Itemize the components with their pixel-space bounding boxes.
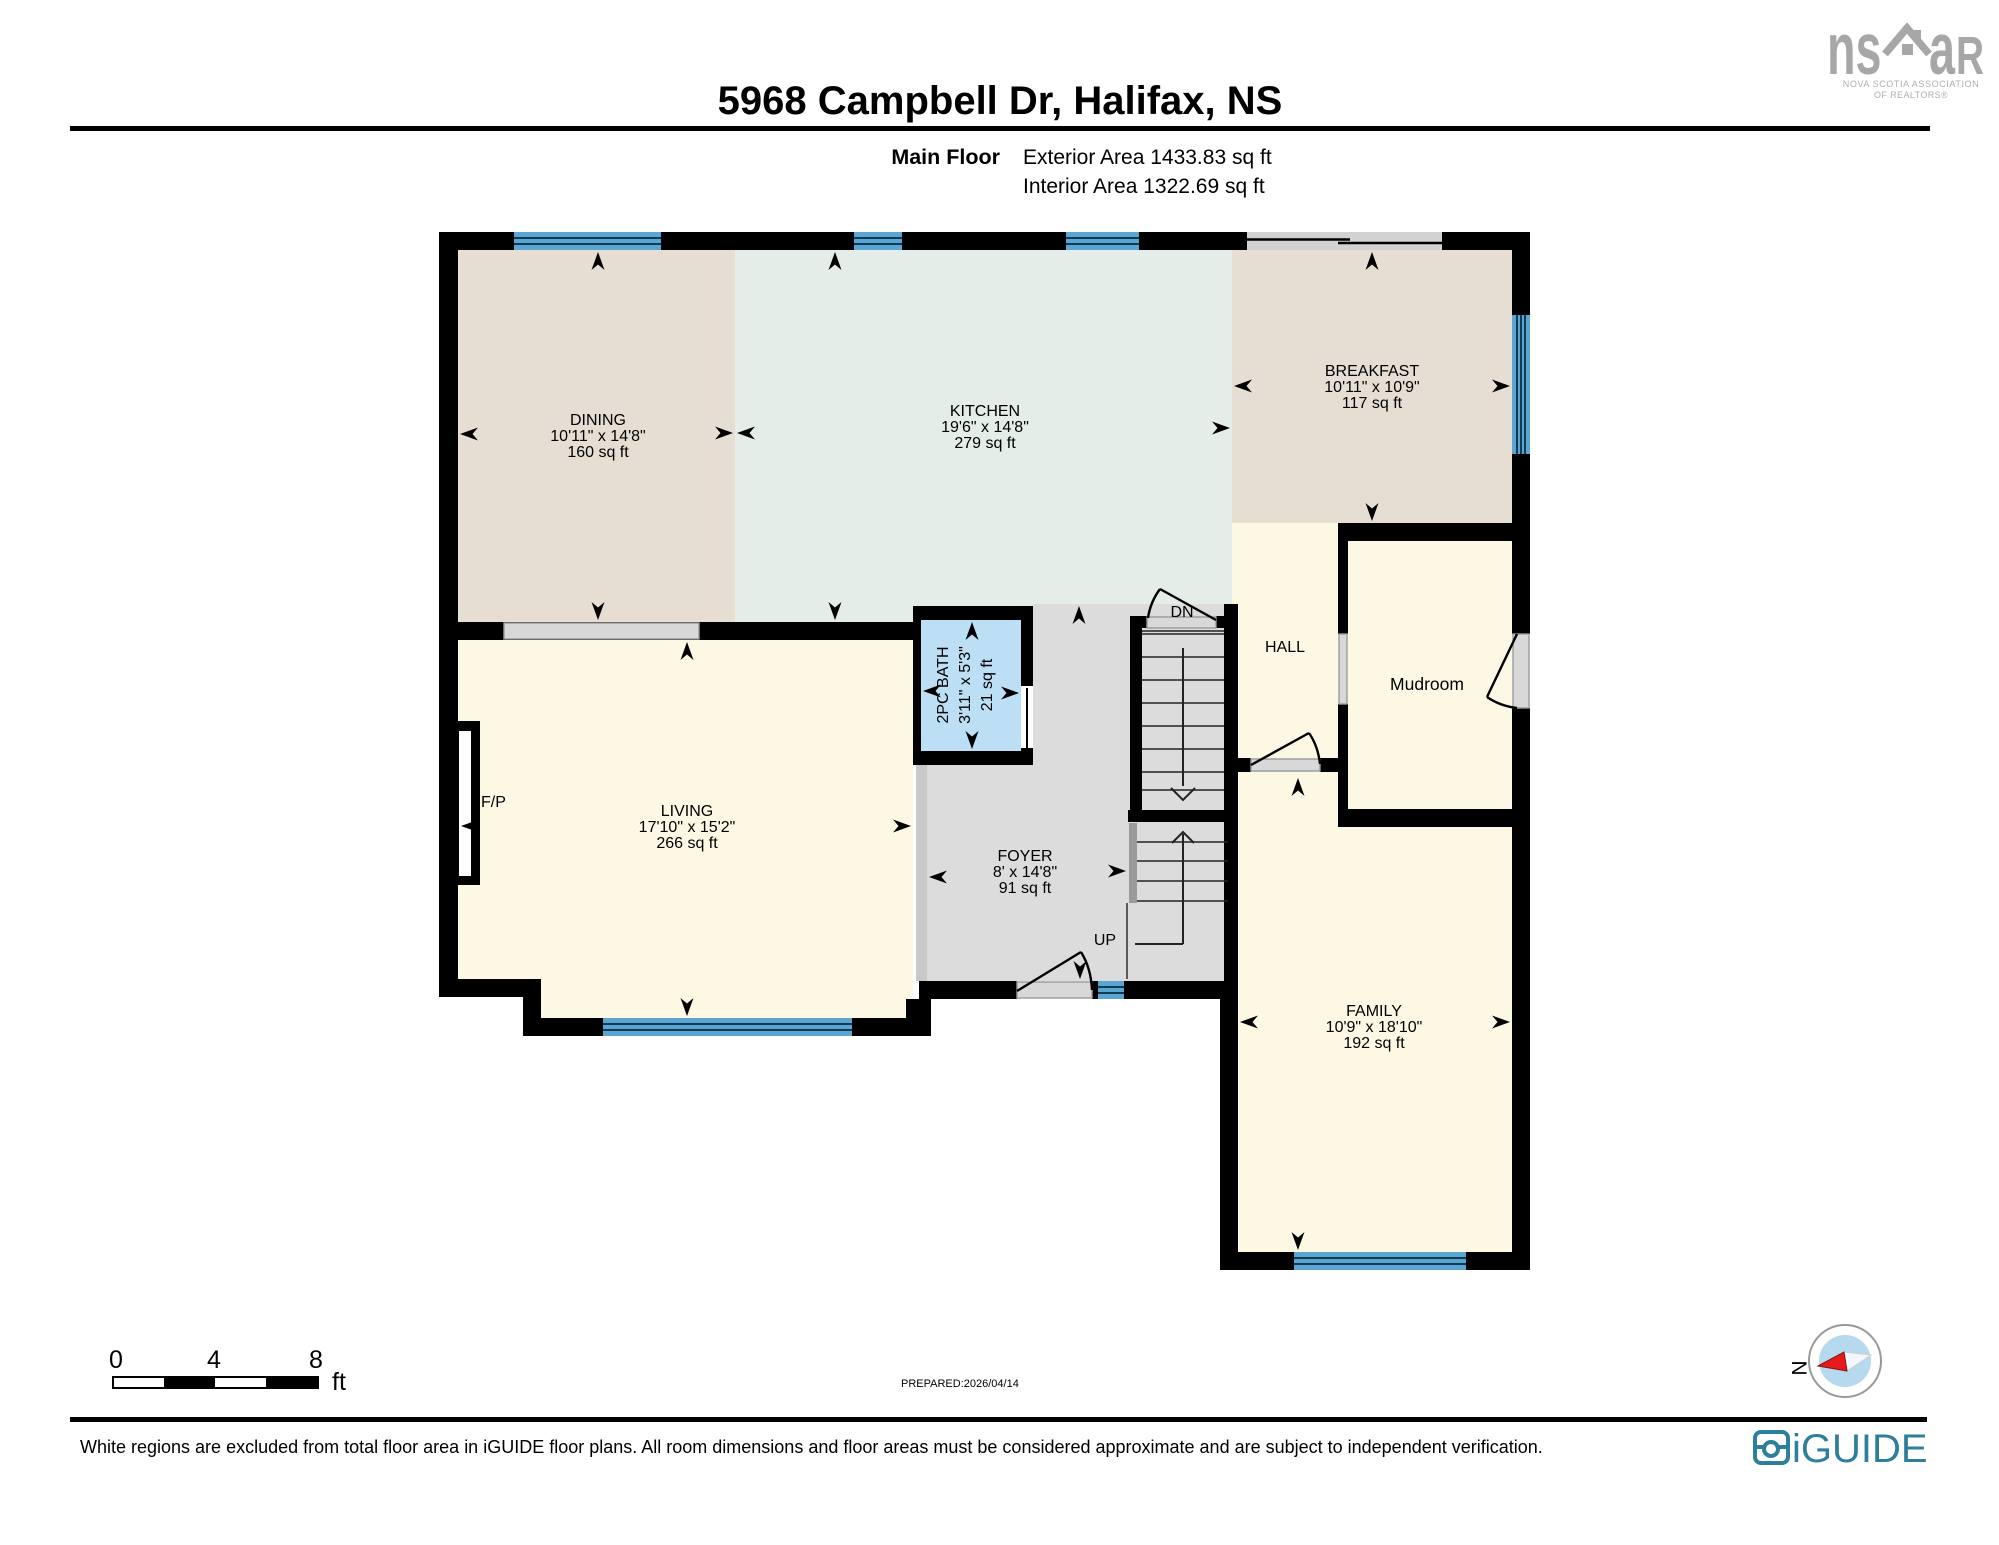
svg-text:UP: UP: [1094, 932, 1116, 949]
svg-text:Interior Area 1322.69 sq ft: Interior Area 1322.69 sq ft: [1023, 175, 1265, 198]
svg-text:White regions are excluded fro: White regions are excluded from total fl…: [80, 1437, 1543, 1457]
svg-text:Exterior Area 1433.83 sq ft: Exterior Area 1433.83 sq ft: [1023, 146, 1272, 169]
svg-text:279 sq ft: 279 sq ft: [954, 435, 1016, 452]
svg-text:a: a: [1929, 8, 1956, 89]
svg-text:ft: ft: [332, 1368, 346, 1396]
svg-text:N: N: [1789, 1360, 1812, 1375]
svg-text:ns: ns: [1827, 8, 1882, 89]
svg-text:266 sq ft: 266 sq ft: [656, 835, 718, 852]
svg-text:19'6" x 14'8": 19'6" x 14'8": [941, 419, 1029, 436]
svg-text:Mudroom: Mudroom: [1390, 674, 1464, 694]
svg-text:192 sq ft: 192 sq ft: [1343, 1035, 1405, 1052]
svg-text:117 sq ft: 117 sq ft: [1342, 395, 1403, 412]
svg-text:4: 4: [207, 1346, 221, 1374]
svg-text:2PC BATH: 2PC BATH: [935, 646, 952, 723]
svg-text:0: 0: [109, 1346, 123, 1374]
svg-text:3'11" x 5'3": 3'11" x 5'3": [957, 646, 974, 724]
svg-text:91 sq ft: 91 sq ft: [999, 880, 1052, 897]
svg-text:DINING: DINING: [570, 412, 626, 429]
svg-text:17'10" x 15'2": 17'10" x 15'2": [639, 819, 736, 836]
svg-text:10'11" x 14'8": 10'11" x 14'8": [550, 428, 645, 445]
svg-text:KITCHEN: KITCHEN: [950, 403, 1020, 420]
svg-text:R: R: [1956, 25, 1984, 86]
svg-text:iGUIDE: iGUIDE: [1792, 1427, 1928, 1471]
svg-text:F/P: F/P: [481, 794, 506, 811]
svg-text:OF REALTORS®: OF REALTORS®: [1874, 90, 1948, 100]
svg-text:160 sq ft: 160 sq ft: [567, 444, 629, 461]
svg-text:HALL: HALL: [1265, 639, 1305, 656]
svg-text:FOYER: FOYER: [997, 848, 1052, 865]
svg-text:PREPARED:2026/04/14: PREPARED:2026/04/14: [901, 1378, 1019, 1390]
svg-text:8' x 14'8": 8' x 14'8": [993, 864, 1057, 881]
svg-text:DN: DN: [1170, 604, 1193, 621]
svg-text:Main Floor: Main Floor: [891, 145, 1000, 169]
svg-text:10'11" x 10'9": 10'11" x 10'9": [1324, 379, 1419, 396]
svg-text:BREAKFAST: BREAKFAST: [1325, 363, 1419, 380]
svg-text:5968 Campbell Dr, Halifax, NS: 5968 Campbell Dr, Halifax, NS: [718, 79, 1283, 123]
svg-text:NOVA SCOTIA ASSOCIATION: NOVA SCOTIA ASSOCIATION: [1843, 79, 1980, 89]
svg-text:8: 8: [309, 1346, 323, 1374]
svg-text:LIVING: LIVING: [661, 803, 713, 820]
svg-text:10'9" x 18'10": 10'9" x 18'10": [1326, 1019, 1423, 1036]
svg-text:21 sq ft: 21 sq ft: [979, 658, 996, 711]
svg-text:FAMILY: FAMILY: [1346, 1003, 1402, 1020]
